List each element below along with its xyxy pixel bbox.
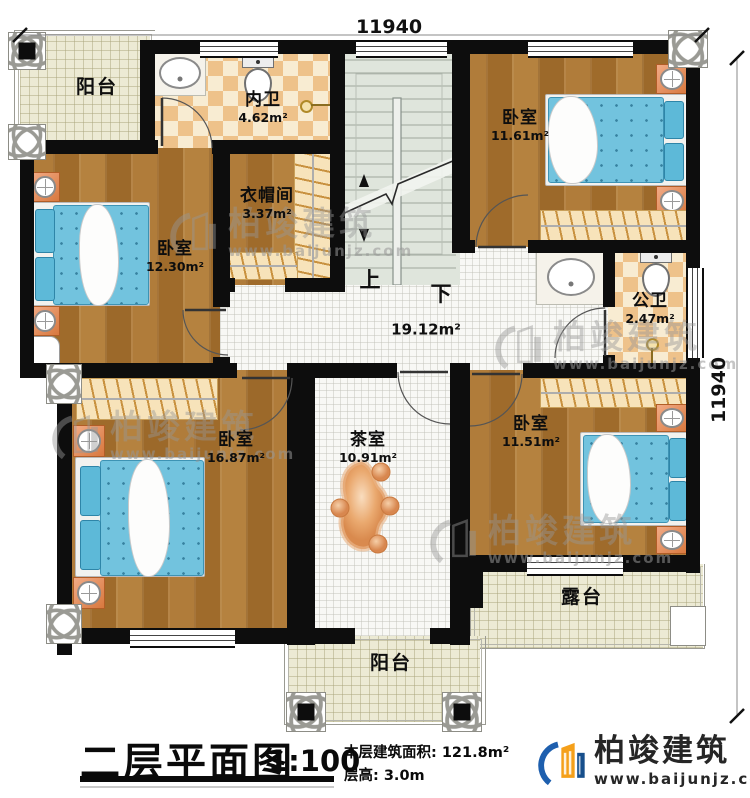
door-arc-tea-room xyxy=(398,372,450,424)
dimension-right: 11940 xyxy=(708,357,730,423)
room-label-bedroom-tr: 卧室 11.61m² xyxy=(491,109,549,143)
room-label-bedroom-bl: 卧室 16.87m² xyxy=(207,431,265,465)
doors-and-dims-overlay xyxy=(0,0,750,730)
door-arc-bedroom-bl xyxy=(240,378,292,430)
room-label-tea-room: 茶室 10.91m² xyxy=(339,431,397,465)
room-label-balcony-top: 阳台 xyxy=(76,77,118,99)
room-area: 10.91m² xyxy=(339,451,397,465)
plan-area-text: 本层建筑面积: 121.8m² xyxy=(344,742,509,765)
brand-block: 柏竣建筑 www.baijunjz.com xyxy=(538,734,750,790)
stairs-up-label: 上 xyxy=(360,264,381,294)
room-area: 16.87m² xyxy=(207,451,265,465)
room-name: 卧室 xyxy=(502,415,560,435)
room-label-terrace: 露台 xyxy=(561,587,603,609)
room-label-bedroom-left: 卧室 12.30m² xyxy=(146,240,204,274)
brand-logo-icon xyxy=(538,734,588,790)
room-area: 11.61m² xyxy=(491,129,549,143)
stairs-down-label: 下 xyxy=(431,278,452,308)
door-arc-bedroom-tr xyxy=(476,195,528,247)
dimension-top: 11940 xyxy=(356,16,422,38)
room-area: 11.51m² xyxy=(502,435,560,449)
room-label-balcony-bottom: 阳台 xyxy=(370,653,412,675)
room-label-bedroom-br: 卧室 11.51m² xyxy=(502,415,560,449)
plan-info: 本层建筑面积: 121.8m² 层高: 3.0m xyxy=(344,742,509,788)
room-name: 卧室 xyxy=(491,109,549,129)
brand-name: 柏竣建筑 xyxy=(594,734,750,768)
room-label-closet: 衣帽间 3.37m² xyxy=(240,187,294,221)
door-arc-bedroom-left xyxy=(183,310,228,355)
door-arc-public-bath xyxy=(555,308,605,358)
room-name: 内卫 xyxy=(238,91,287,111)
floorplan-canvas: 柏竣建筑 www.baijunjz.com 柏竣建筑 www.baijunjz.… xyxy=(0,0,750,798)
room-area: 12.30m² xyxy=(146,260,204,274)
room-area: 2.47m² xyxy=(625,312,674,326)
brand-website: www.baijunjz.com xyxy=(594,770,750,788)
door-arc-inner-bath xyxy=(162,98,212,148)
room-label-inner-bath: 内卫 4.62m² xyxy=(238,91,287,125)
room-name: 衣帽间 xyxy=(240,187,294,207)
room-area: 4.62m² xyxy=(238,111,287,125)
room-area: 3.37m² xyxy=(240,207,294,221)
room-name: 卧室 xyxy=(146,240,204,260)
room-name: 卧室 xyxy=(207,431,265,451)
room-area: 19.12m² xyxy=(391,321,461,338)
plan-floor-height-text: 层高: 3.0m xyxy=(344,765,509,788)
room-name: 公卫 xyxy=(625,292,674,312)
room-name: 茶室 xyxy=(339,431,397,451)
room-label-hallway: 19.12m² xyxy=(391,321,461,338)
room-label-public-bath: 公卫 2.47m² xyxy=(625,292,674,326)
title-underline-light xyxy=(80,786,334,788)
